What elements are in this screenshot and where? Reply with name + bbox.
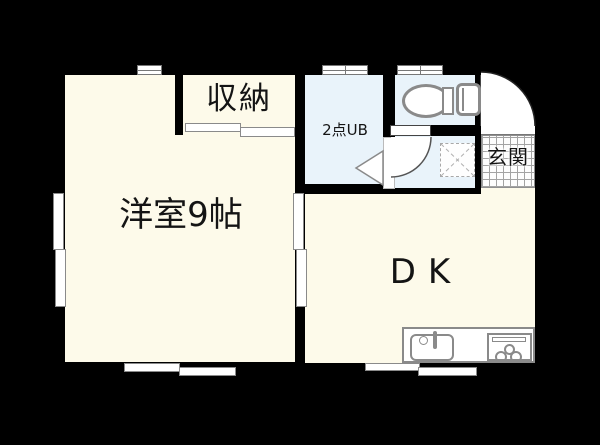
western-room-bottom-window-icon xyxy=(124,363,180,372)
gas-stove-icon xyxy=(487,333,532,361)
washing-machine-space-icon xyxy=(440,143,475,177)
kitchen-sink-icon xyxy=(410,334,454,361)
entrance-label: 玄関 xyxy=(481,146,535,168)
western-room-bottom-window-icon xyxy=(179,367,236,376)
dk-bottom-window-icon xyxy=(418,367,477,376)
closet-label: 収納 xyxy=(183,82,295,116)
unit-bath-window-icon xyxy=(322,65,368,75)
toilet-window-icon xyxy=(397,65,443,75)
dk-floor-under-entrance xyxy=(481,188,535,196)
kitchen-counter xyxy=(402,327,535,363)
entrance-door-leaf-icon xyxy=(480,75,490,126)
entrance-step xyxy=(481,125,535,135)
dk-bottom-window-icon xyxy=(365,363,420,371)
toilet-seat-hinge-icon xyxy=(442,87,454,115)
western-room-left-window-icon xyxy=(53,193,64,250)
closet-sliding-door-icon xyxy=(185,123,241,132)
western-room-vent-window-icon xyxy=(137,65,162,75)
faucet-icon xyxy=(433,331,437,349)
floor-plan: 洋室9帖 収納 2点UB 玄関 DK xyxy=(0,0,600,445)
toilet-tank-icon xyxy=(456,83,481,116)
unit-bath-door-opening xyxy=(383,137,395,189)
western-room-dk-sliding-door-icon xyxy=(293,193,304,250)
closet-wall xyxy=(175,75,183,135)
unit-bath-label: 2点UB xyxy=(303,122,387,139)
western-room-label: 洋室9帖 xyxy=(75,197,287,234)
western-room-left-window-icon xyxy=(55,249,66,307)
dk-label: DK xyxy=(305,254,535,291)
sink-drain-icon xyxy=(419,336,428,345)
washroom-door-leaf-icon xyxy=(390,125,431,136)
closet-sliding-door-icon xyxy=(240,127,295,137)
